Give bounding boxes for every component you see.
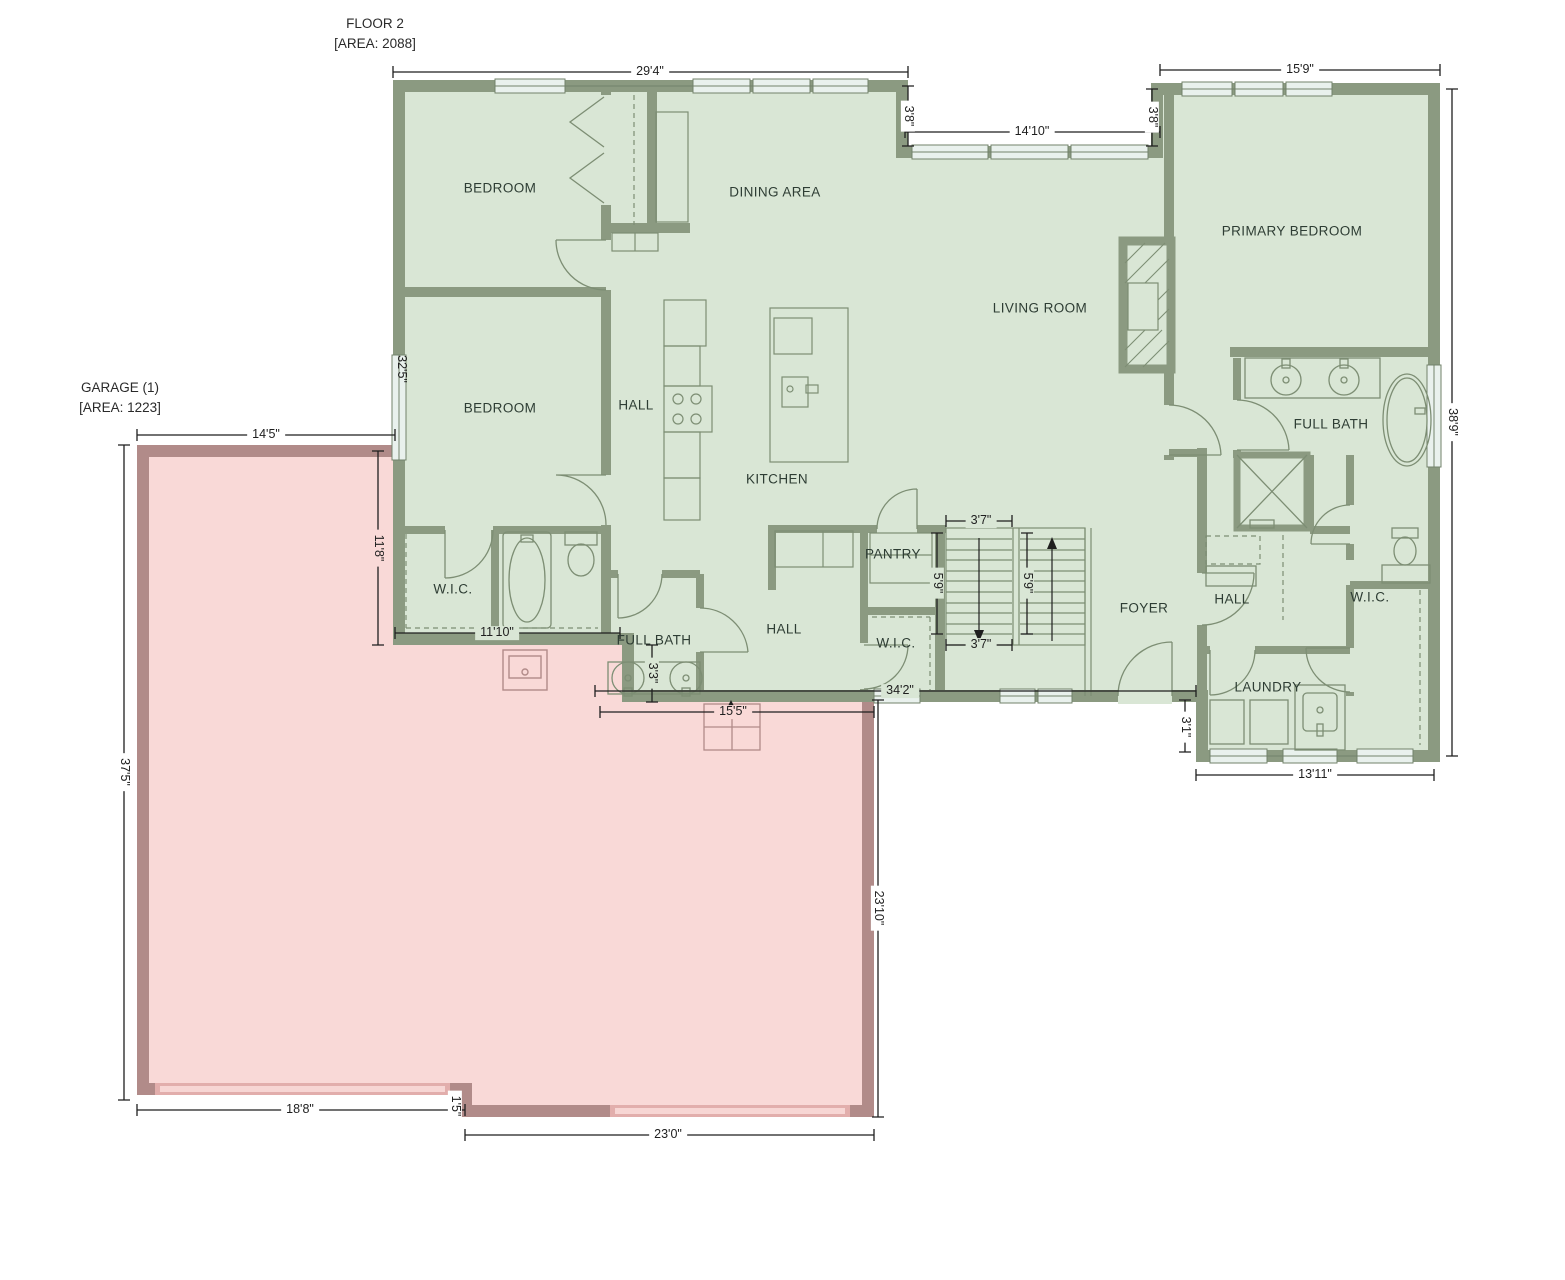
dim-garage-west: 37'5"	[117, 753, 131, 791]
room-label-pantry: PANTRY	[865, 547, 921, 562]
dim-garage-south-right: 23'0"	[649, 1128, 687, 1142]
dim-garage-top: 14'5"	[247, 428, 285, 442]
room-label-laundry: LAUNDRY	[1234, 680, 1301, 695]
room-label-wic-center: W.I.C.	[876, 636, 915, 651]
dim-main-bottom: 34'2"	[881, 684, 919, 698]
room-label-primary-bedroom: PRIMARY BEDROOM	[1222, 224, 1363, 239]
room-label-full-bath-east: FULL BATH	[1294, 417, 1369, 432]
dim-primary-width: 15'9"	[1281, 63, 1319, 77]
room-label-living-room: LIVING ROOM	[993, 301, 1087, 316]
room-label-wic-east: W.I.C.	[1350, 590, 1389, 605]
dim-left-height: 32'5"	[394, 353, 408, 385]
dim-garage-east: 23'10"	[871, 886, 885, 931]
garage-title-area: [AREA: 1223]	[79, 398, 161, 418]
garage-door-left	[155, 1083, 450, 1095]
dim-garage-notch: 1'5"	[448, 1091, 462, 1122]
floor-plan-canvas: FLOOR 2 [AREA: 2088] GARAGE (1) [AREA: 1…	[0, 0, 1565, 1280]
dim-stair-width-top: 3'7"	[966, 514, 997, 528]
room-label-hall-west: HALL	[618, 398, 653, 413]
dim-dining-windows: 14'10"	[1010, 125, 1055, 139]
dim-bath-step: 3'3"	[645, 658, 659, 689]
floor-title: FLOOR 2 [AREA: 2088]	[334, 14, 416, 55]
garage-title-name: GARAGE (1)	[79, 378, 161, 398]
dim-top-width: 29'4"	[631, 65, 669, 79]
dim-garage-south-left: 18'8"	[281, 1103, 319, 1117]
room-label-hall-east: HALL	[1214, 592, 1249, 607]
dim-inset-left: 3'8"	[901, 101, 915, 132]
room-label-bedroom-mid: BEDROOM	[464, 401, 537, 416]
room-label-hall-center: HALL	[766, 622, 801, 637]
dim-right-height: 38'9"	[1445, 403, 1459, 441]
floor-title-name: FLOOR 2	[334, 14, 416, 34]
room-label-wic-west: W.I.C.	[433, 582, 472, 597]
room-label-bedroom-top: BEDROOM	[464, 181, 537, 196]
dim-stair-flight-left: 5'9"	[930, 568, 944, 599]
dim-garage-interior: 11'8"	[371, 530, 385, 567]
dim-stair-flight-right: 5'9"	[1020, 568, 1034, 599]
garage-door-right	[610, 1105, 850, 1117]
floor-title-area: [AREA: 2088]	[334, 34, 416, 54]
dim-inset-right: 3'8"	[1145, 102, 1159, 133]
room-label-foyer: FOYER	[1120, 601, 1169, 616]
dim-laundry-width: 13'11"	[1293, 768, 1337, 782]
room-label-dining-area: DINING AREA	[729, 185, 820, 200]
dim-laundry-offset: 3'1"	[1178, 712, 1192, 743]
garage-title: GARAGE (1) [AREA: 1223]	[79, 378, 161, 419]
fireplace	[1123, 241, 1171, 369]
dim-stair-width-bottom: 3'7"	[966, 638, 997, 652]
room-label-full-bath-west: FULL BATH	[617, 633, 692, 648]
room-label-kitchen: KITCHEN	[746, 472, 808, 487]
dim-bath-width: 11'10"	[475, 626, 519, 640]
dim-entry-width: 15'5"	[714, 705, 752, 719]
